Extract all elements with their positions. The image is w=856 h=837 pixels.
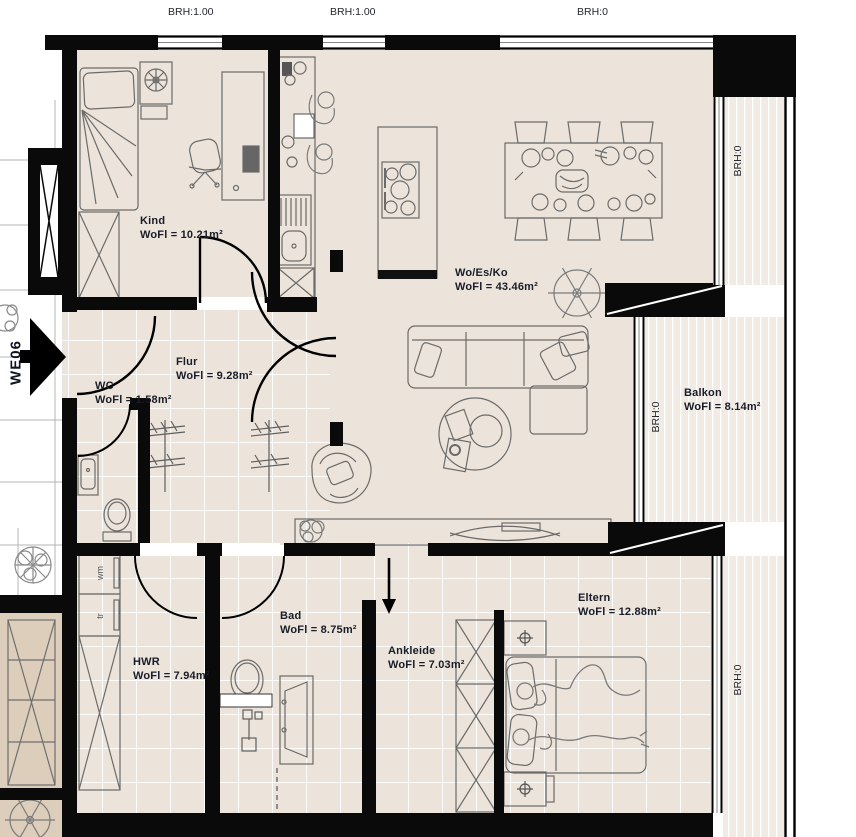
room-area: WoFl = 9.28m² — [176, 370, 253, 384]
room-name: Wo/Es/Ko — [455, 267, 538, 281]
floor-plan: wm tr BRH:1.00 BRH:1.00 BRH:0 BRH:0 BRH:… — [0, 0, 856, 837]
label-wo-es-ko: Wo/Es/Ko WoFl = 43.46m² — [455, 267, 538, 294]
label-kind: Kind WoFl = 10.21m² — [140, 215, 223, 242]
room-name: Kind — [140, 215, 223, 229]
brh-label-top-1: BRH:1.00 — [168, 6, 214, 18]
room-name: WC — [95, 380, 172, 394]
label-wc: WC WoFl = 1.58m² — [95, 380, 172, 407]
plant-site-left — [15, 547, 51, 583]
room-name: Balkon — [684, 387, 761, 401]
window-top-2 — [323, 35, 385, 50]
unit-label: WE06 — [8, 336, 25, 390]
entrance-arrow — [20, 318, 66, 396]
room-name: HWR — [133, 656, 210, 670]
label-ankleide: Ankleide WoFl = 7.03m² — [388, 645, 465, 672]
balkon-floor-top — [725, 97, 784, 285]
label-flur: Flur WoFl = 9.28m² — [176, 356, 253, 383]
glass-wall-living-east — [713, 97, 725, 285]
brh-label-top-2: BRH:1.00 — [330, 6, 376, 18]
room-name: Ankleide — [388, 645, 465, 659]
dryer-label: tr — [95, 613, 105, 619]
room-area: WoFl = 7.03m² — [388, 659, 465, 673]
brh-label-top-3: BRH:0 — [577, 6, 608, 18]
window-top-1 — [158, 35, 222, 50]
room-name: Flur — [176, 356, 253, 370]
label-hwr: HWR WoFl = 7.94m² — [133, 656, 210, 683]
room-area: WoFl = 1.58m² — [95, 394, 172, 408]
elevator-shaft — [40, 165, 58, 277]
balcony-railing — [784, 97, 796, 837]
glass-wall-eltern-east — [711, 556, 723, 813]
room-name: Eltern — [578, 592, 661, 606]
room-area: WoFl = 8.75m² — [280, 624, 357, 638]
window-top-3 — [500, 35, 713, 50]
label-bad: Bad WoFl = 8.75m² — [280, 610, 357, 637]
room-area: WoFl = 8.14m² — [684, 401, 761, 415]
room-area: WoFl = 43.46m² — [455, 281, 538, 295]
room-area: WoFl = 7.94m² — [133, 670, 210, 684]
washing-machine-label: wm — [95, 566, 105, 581]
brh-label-balcony-bottom: BRH:0 — [732, 653, 744, 707]
glass-door-balcony — [633, 317, 645, 522]
room-area: WoFl = 12.88m² — [578, 606, 661, 620]
label-balkon: Balkon WoFl = 8.14m² — [684, 387, 761, 414]
room-name: Bad — [280, 610, 357, 624]
bad-shelf — [220, 694, 272, 707]
room-area: WoFl = 10.21m² — [140, 229, 223, 243]
floor-plan-drawing: wm tr — [0, 0, 856, 837]
balkon-floor-middle — [645, 317, 784, 522]
plant-site-upper — [0, 305, 18, 331]
label-eltern: Eltern WoFl = 12.88m² — [578, 592, 661, 619]
entrance-floor — [62, 312, 77, 398]
brh-label-balcony-top: BRH:0 — [732, 134, 744, 188]
brh-label-balcony-middle: BRH:0 — [650, 390, 662, 444]
